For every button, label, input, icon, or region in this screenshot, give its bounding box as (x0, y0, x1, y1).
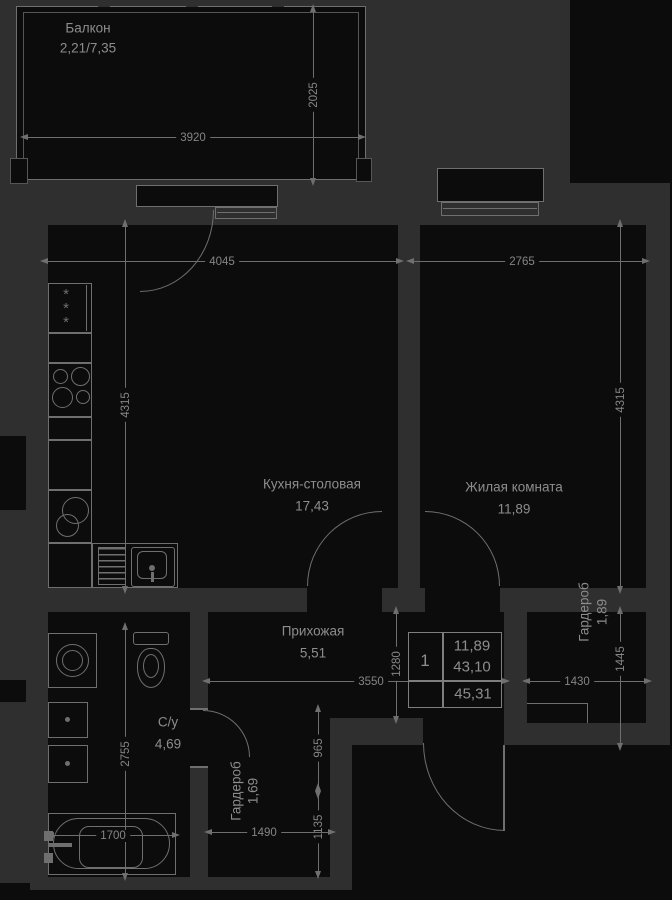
info-living-area: 11,89 (454, 638, 490, 655)
info-total-area: 45,31 (454, 686, 492, 703)
living-door-stub (420, 588, 425, 612)
kitchen-window (215, 207, 277, 219)
wardrobe-big-area: 1,89 (595, 599, 610, 625)
dim-kitchen-height: 4315 (120, 388, 132, 422)
living-window (441, 202, 539, 216)
floor-plan: Балкон 2,21/7,35 * * * (0, 0, 672, 900)
dim-bath-width: 1700 (96, 830, 130, 842)
living-area: 11,89 (498, 502, 531, 517)
toilet-tank-icon (133, 632, 169, 645)
wardrobe-small-right-wall (330, 718, 352, 877)
right-wall (646, 183, 670, 745)
dim-wardrobe-big-width: 1430 (560, 676, 594, 688)
living-window-sill (437, 168, 544, 202)
bath-label: С/у (158, 715, 178, 730)
kitchen-label: Кухня-столовая (263, 477, 361, 492)
burner-icon (53, 369, 68, 384)
toilet-bowl-inner-icon (143, 654, 159, 678)
living-wardrobe-wall (500, 588, 646, 612)
facade-pilaster-lower (0, 680, 26, 702)
wardrobe-small-area: 1,69 (246, 778, 261, 804)
bath-door-jamb (190, 766, 208, 768)
info-area: 43,10 (453, 659, 491, 676)
kitchen-counter (48, 417, 92, 440)
entry-wall-left (352, 718, 423, 745)
balcony-label: Балкон (65, 21, 110, 36)
fridge-door-line (86, 285, 87, 331)
bottom-wall (30, 877, 352, 890)
info-rooms-count: 1 (420, 651, 429, 671)
faucet-icon (151, 572, 154, 582)
bath-right-wall-upper (190, 612, 208, 710)
railing-post-icon (10, 106, 16, 118)
info-table-divider-v (442, 632, 444, 708)
wardrobe-big-label: Гардероб (577, 582, 592, 641)
dim-lobby-height: 965 (313, 734, 325, 761)
bath-area: 4,69 (155, 737, 181, 752)
hall-area: 5,51 (300, 646, 326, 661)
kitchen-hall-wall (30, 588, 307, 612)
dim-kitchen-width: 4045 (205, 256, 239, 268)
wardrobe-small-label: Гардероб (229, 761, 244, 820)
entry-door-arc (423, 743, 505, 831)
burner-icon (76, 390, 90, 404)
railing-post-icon (98, 2, 110, 7)
bath-right-wall-lower (190, 768, 208, 877)
dim-bath-height: 2755 (120, 737, 132, 771)
hall-label: Прихожая (282, 624, 345, 639)
dim-living-width: 2765 (505, 256, 539, 268)
dim-living-height: 4315 (615, 383, 627, 417)
kitchen-window-frame-line (217, 212, 275, 213)
railing-post-icon (186, 2, 198, 7)
faucet-dot-icon (149, 565, 155, 571)
dishwasher-icon (98, 547, 126, 585)
fridge-stars-icon: * * * (56, 288, 76, 330)
railing-post-icon (272, 2, 284, 7)
dim-wardrobe-big-height: 1445 (615, 642, 627, 676)
dim-line-wardrobe-big-height (620, 614, 621, 743)
bathtub-spout-icon (48, 843, 72, 847)
washer-drum-inner-icon (62, 650, 83, 671)
vanity-knob-icon (65, 761, 70, 766)
left-wall (0, 183, 48, 883)
railing-post-icon (366, 52, 372, 64)
info-table-divider-h (408, 680, 502, 682)
bath-door-jamb (190, 708, 208, 710)
dim-balcony-depth: 2025 (308, 78, 320, 112)
vanity-knob-icon (65, 717, 70, 722)
railing-post-icon (10, 52, 16, 64)
wardrobe-niche (527, 703, 588, 723)
balcony-corner-post (356, 158, 372, 182)
kitchen-counter (48, 440, 92, 490)
dim-hall-height: 1280 (391, 647, 403, 681)
burner-icon (71, 367, 90, 386)
bathtub-tap-icon (44, 853, 53, 863)
kitchen-area: 17,43 (295, 499, 329, 514)
dim-balcony-width: 3920 (176, 132, 210, 144)
entry-door-leaf (503, 745, 505, 831)
dim-hall-width: 3550 (354, 676, 388, 688)
dim-wardrobe-small-height: 1135 (313, 811, 325, 844)
kitchen-living-partition (398, 225, 420, 612)
kitchen-counter-corner (48, 543, 92, 588)
burner-icon (52, 387, 73, 408)
balcony-door-sill (136, 185, 278, 207)
kitchen-counter (48, 333, 92, 363)
facade-pilaster-upper (0, 436, 26, 510)
living-label: Жилая комната (465, 480, 563, 495)
balcony-area: 2,21/7,35 (60, 41, 116, 56)
pot-icon (56, 514, 79, 537)
dim-wardrobe-small-width: 1490 (247, 827, 281, 839)
wardrobe-big-bottom-wall (527, 723, 670, 745)
balcony-corner-post (10, 158, 28, 184)
railing-post-icon (366, 106, 372, 118)
living-window-frame-line (443, 208, 537, 209)
